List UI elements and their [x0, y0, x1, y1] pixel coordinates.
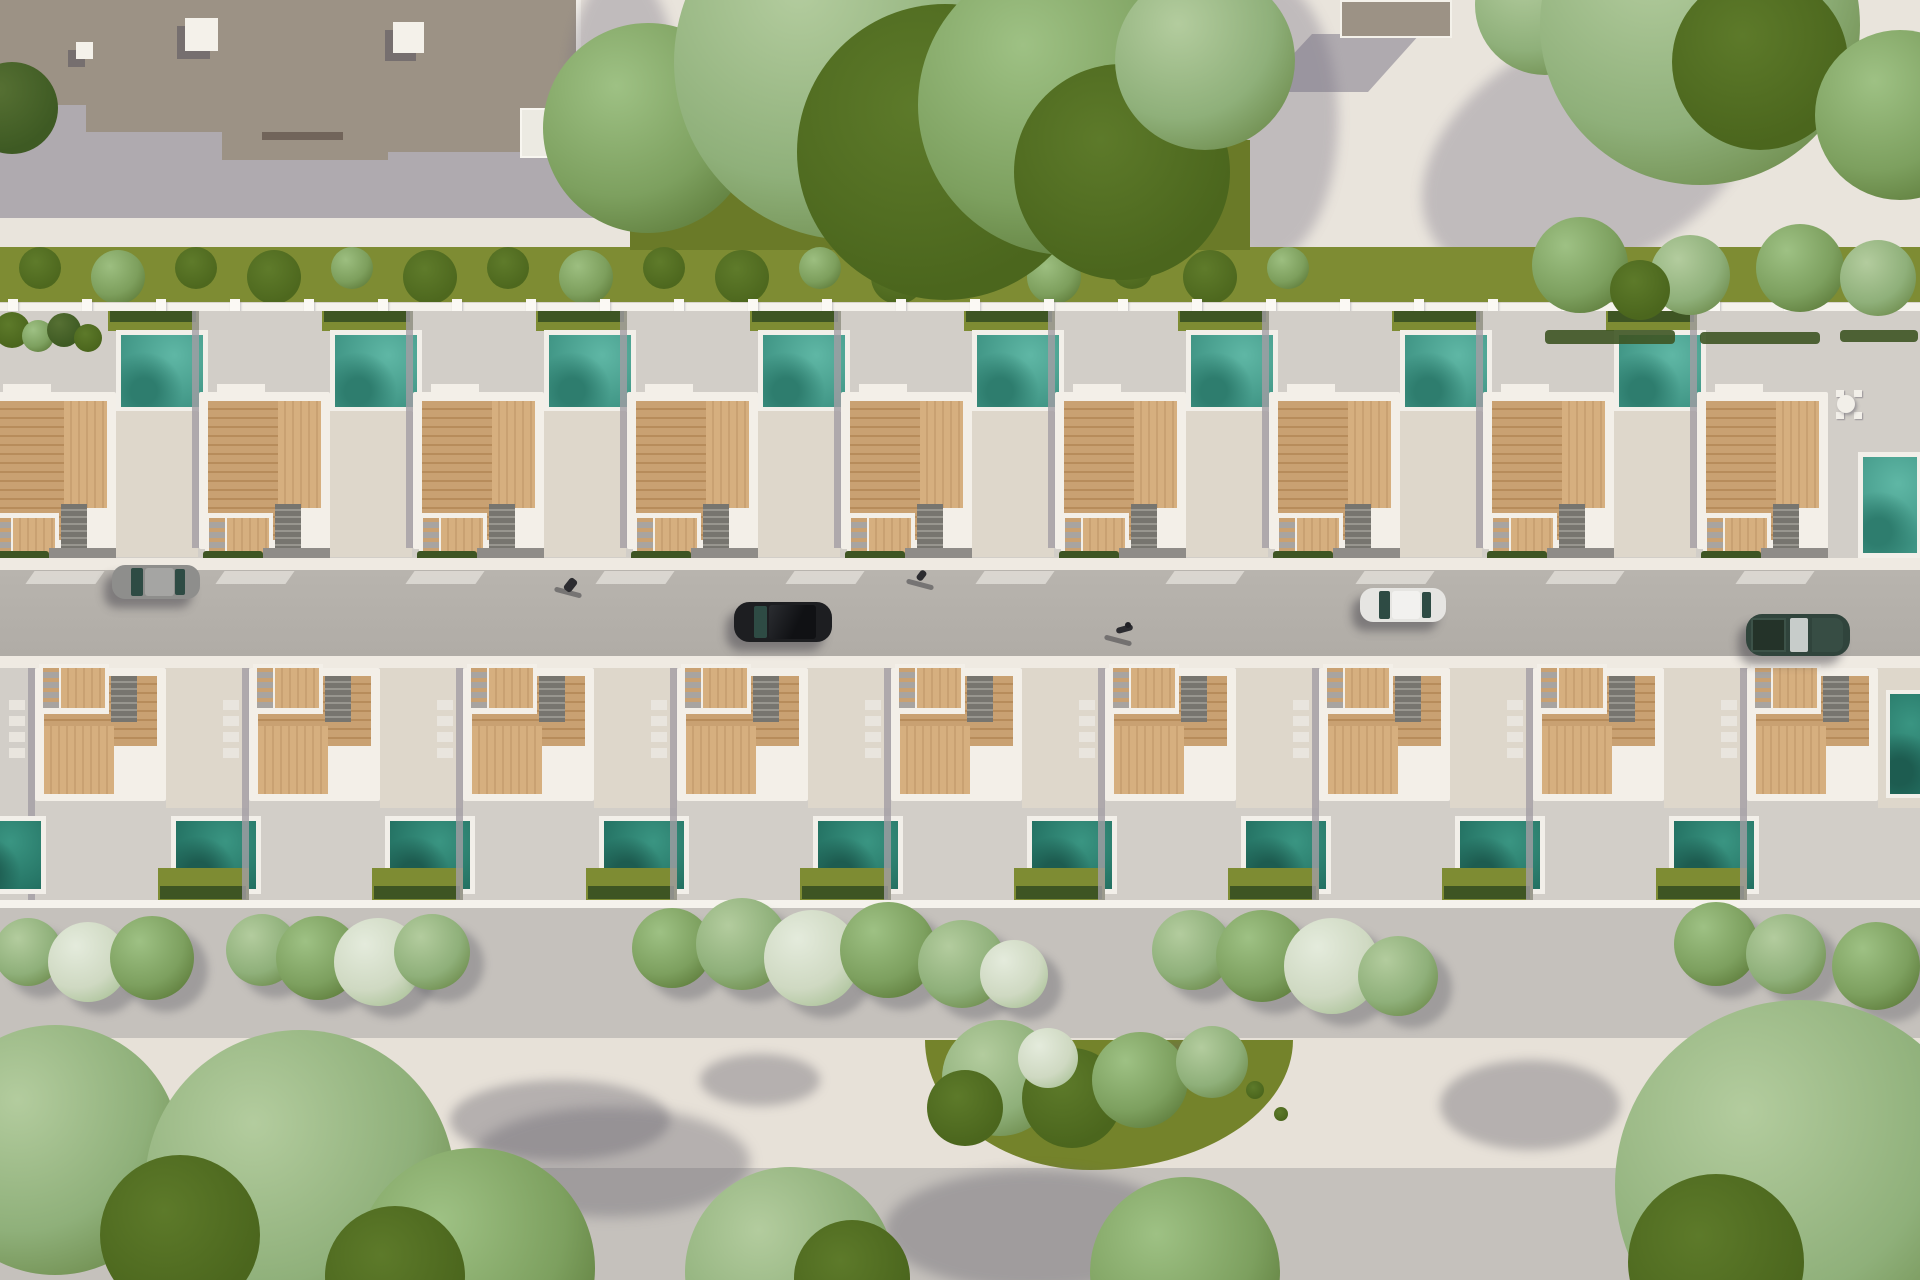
backyard-hedge [538, 311, 624, 322]
road-1 [0, 570, 1920, 656]
paver [1293, 748, 1309, 758]
patio-table [1837, 395, 1855, 413]
fence-shadow-mark [25, 571, 104, 584]
paver [437, 732, 453, 742]
stairs [703, 504, 729, 554]
roof-deck-notch [1368, 508, 1400, 548]
fence-shadow-mark [405, 571, 484, 584]
aerial-render-scene [0, 0, 1920, 1280]
lot-divider [1526, 668, 1533, 900]
stairs [61, 504, 87, 554]
fence-shadow-mark [785, 571, 864, 584]
driveway [1614, 411, 1696, 557]
stairs [1773, 504, 1799, 554]
lot-divider [456, 668, 463, 900]
roof-deck-planks-v [900, 726, 970, 794]
paver [1079, 700, 1095, 710]
villa-frame-step [1073, 384, 1121, 394]
stairs [1823, 676, 1849, 722]
front-wall [905, 548, 972, 558]
villa-frame-step [859, 384, 907, 394]
backyard-hedge [110, 311, 196, 322]
car-windshield [131, 568, 142, 595]
driveway [330, 411, 412, 557]
paver [865, 748, 881, 758]
porch-deck [489, 668, 533, 708]
hedge-clump [331, 247, 373, 289]
car-green-pickup [1746, 614, 1850, 656]
porch-deck [1559, 668, 1603, 708]
paver [9, 700, 25, 710]
roof-box-1 [185, 18, 218, 51]
stairs [489, 504, 515, 554]
roof-deck-planks-v [1756, 726, 1826, 794]
paver [223, 748, 239, 758]
roof-deck-planks-v [1328, 726, 1398, 794]
tree-shadow [700, 1054, 820, 1106]
island-tree [1176, 1026, 1248, 1098]
hedge-clump [403, 250, 457, 304]
roof-deck-planks-v [472, 726, 542, 794]
strip-tree [1610, 260, 1670, 320]
paver [865, 732, 881, 742]
pool-vertical-top [1858, 452, 1920, 558]
car-rear-window [175, 569, 185, 594]
lot-divider [620, 311, 627, 548]
villa-frame-step [217, 384, 265, 394]
paver [9, 732, 25, 742]
hedge-clump [1183, 250, 1237, 304]
fence-shadow-mark [1165, 571, 1244, 584]
hedge-clump [1267, 247, 1309, 289]
patio-chair [1854, 412, 1862, 419]
paver [1507, 716, 1523, 726]
front-wall [477, 548, 544, 558]
bush [980, 940, 1048, 1008]
cyclist-head [1125, 622, 1131, 628]
pergola [43, 668, 59, 708]
driveway [1400, 411, 1482, 557]
hedge-clump [247, 250, 301, 304]
pool [0, 816, 46, 894]
lot-divider [242, 668, 249, 900]
roof-deck-planks-v [1542, 726, 1612, 794]
hedge-clump [799, 247, 841, 289]
island-tree [927, 1070, 1003, 1146]
hedge-clump [487, 247, 529, 289]
roof-deck-notch [298, 508, 330, 548]
front-wall [1761, 548, 1828, 558]
paver [1293, 732, 1309, 742]
lot-divider [406, 311, 413, 548]
pergola [1541, 668, 1557, 708]
paver [1079, 748, 1095, 758]
stairs [967, 676, 993, 722]
stairs [1345, 504, 1371, 554]
backyard-hedge [374, 886, 460, 899]
paver [1293, 700, 1309, 710]
stairs [1181, 676, 1207, 722]
backyard-hedge [1016, 886, 1102, 899]
lot-divider [670, 668, 677, 900]
porch-deck [1131, 668, 1175, 708]
paver [9, 716, 25, 726]
front-wall [1119, 548, 1186, 558]
roof-box-2 [393, 22, 424, 53]
paver [1721, 748, 1737, 758]
porch-deck [275, 668, 319, 708]
roof-deck-planks-v [686, 726, 756, 794]
hedge-row [1700, 332, 1820, 344]
car-silver-sedan [112, 565, 200, 599]
backyard-hedge [1394, 311, 1480, 322]
lot-divider [834, 311, 841, 548]
hedge-clump [175, 247, 217, 289]
hedge-clump [559, 250, 613, 304]
paver [1293, 716, 1309, 726]
front-wall [49, 548, 116, 558]
lot-divider [1476, 311, 1483, 548]
island-tree [1018, 1028, 1078, 1088]
truck-cab-glass [1790, 618, 1809, 652]
stairs [275, 504, 301, 554]
paver [1721, 700, 1737, 710]
lot-divider [1262, 311, 1269, 548]
villa-frame-step [431, 384, 479, 394]
car-white-sedan [1360, 588, 1446, 622]
roof-deck-notch [84, 508, 116, 548]
paver [9, 748, 25, 758]
strip-tree [1756, 224, 1844, 312]
porch-deck [61, 668, 105, 708]
driveway [116, 411, 198, 557]
backyard-hedge [324, 311, 410, 322]
driveway [972, 411, 1054, 557]
lot-divider [192, 311, 199, 548]
fence-bottom [0, 900, 1920, 908]
bush [110, 916, 194, 1000]
hedge-row [1840, 330, 1918, 342]
stairs [111, 676, 137, 722]
porch-deck [1773, 668, 1817, 708]
curb-top [0, 558, 1920, 570]
hedge-clump [715, 250, 769, 304]
villa-frame-step [1501, 384, 1549, 394]
fence-shadow-mark [215, 571, 294, 584]
hedge-clump [19, 247, 61, 289]
hedge-row [1545, 330, 1675, 344]
backyard-hedge [752, 311, 838, 322]
paver [223, 716, 239, 726]
roof-deck-notch [1154, 508, 1186, 548]
paver [437, 748, 453, 758]
truck-bed [1751, 618, 1785, 652]
small-building-roof [1340, 0, 1452, 38]
paver [223, 732, 239, 742]
roof-deck-planks-v [258, 726, 328, 794]
paver [1721, 732, 1737, 742]
fence-shadow-mark [1545, 571, 1624, 584]
porch-deck [703, 668, 747, 708]
apartment-roof-recess [262, 132, 343, 140]
front-wall [263, 548, 330, 558]
roof-box-0 [76, 42, 93, 59]
fence-shadow-mark [975, 571, 1054, 584]
backyard-hedge [588, 886, 674, 899]
pergola [1113, 668, 1129, 708]
front-wall [1547, 548, 1614, 558]
island-tree [1246, 1081, 1264, 1099]
bush [1746, 914, 1826, 994]
roof-deck-notch [512, 508, 544, 548]
paver [437, 700, 453, 710]
car-roof [769, 605, 816, 639]
fence-shadow-mark [1355, 571, 1434, 584]
pergola [1327, 668, 1343, 708]
bush [1832, 922, 1920, 1010]
lot-divider [1740, 668, 1747, 900]
paver [1507, 732, 1523, 742]
roof-deck-notch [726, 508, 758, 548]
backyard-hedge [160, 886, 246, 899]
backyard-hedge [1230, 886, 1316, 899]
patio-chair [1854, 390, 1862, 397]
stairs [917, 504, 943, 554]
car-rear-window [1422, 592, 1431, 617]
car-windshield [1379, 591, 1390, 618]
car-roof [145, 568, 174, 595]
backyard-hedge [802, 886, 888, 899]
villa-frame-step [645, 384, 693, 394]
roof-deck-planks-v [44, 726, 114, 794]
roof-deck-notch [1796, 508, 1828, 548]
roof-deck-notch [1582, 508, 1614, 548]
pergola [899, 668, 915, 708]
paver [651, 732, 667, 742]
hedge-clump [91, 250, 145, 304]
villa-frame-step [3, 384, 51, 394]
front-wall [1333, 548, 1400, 558]
paver [651, 716, 667, 726]
villa-frame-step [1287, 384, 1335, 394]
truck-hood [1812, 618, 1843, 652]
car-roof [1392, 591, 1420, 618]
fence-shadow-mark [1735, 571, 1814, 584]
paver [651, 700, 667, 710]
paver [865, 700, 881, 710]
villa-frame-step [1715, 384, 1763, 394]
stairs [1131, 504, 1157, 554]
roof-deck-notch [940, 508, 972, 548]
paver [1507, 700, 1523, 710]
paver [1079, 732, 1095, 742]
driveway [1186, 411, 1268, 557]
stairs [753, 676, 779, 722]
paver [1507, 748, 1523, 758]
bush [1674, 902, 1758, 986]
hedge-clump [643, 247, 685, 289]
porch-deck [1345, 668, 1389, 708]
car-windshield [754, 606, 768, 638]
pergola [257, 668, 273, 708]
fence-shadow-mark [595, 571, 674, 584]
porch-deck [917, 668, 961, 708]
pergola [471, 668, 487, 708]
pergola [685, 668, 701, 708]
paver [1721, 716, 1737, 726]
lot-divider [1048, 311, 1055, 548]
backyard-hedge [1180, 311, 1266, 322]
driveway [544, 411, 626, 557]
paver [223, 700, 239, 710]
island-tree [1274, 1107, 1288, 1121]
backyard-hedge [966, 311, 1052, 322]
stairs [1559, 504, 1585, 554]
stairs [1395, 676, 1421, 722]
bush [1358, 936, 1438, 1016]
paver [437, 716, 453, 726]
front-wall [691, 548, 758, 558]
lot-divider [1312, 668, 1319, 900]
paver [651, 748, 667, 758]
backyard-hedge [1444, 886, 1530, 899]
stairs [1609, 676, 1635, 722]
lot-divider [884, 668, 891, 900]
paver [865, 716, 881, 726]
stairs [325, 676, 351, 722]
strip-tree [1840, 240, 1916, 316]
island-tree [1092, 1032, 1188, 1128]
stairs [539, 676, 565, 722]
tree-shadow [1440, 1060, 1620, 1150]
driveway [758, 411, 840, 557]
pool-vertical-bottom [1886, 690, 1920, 798]
bush [394, 914, 470, 990]
paver [1079, 716, 1095, 726]
lot-divider [1690, 311, 1697, 548]
roof-deck-planks-v [1114, 726, 1184, 794]
backyard-hedge [1658, 886, 1744, 899]
patio-chair [1836, 412, 1844, 419]
planter-shrub [74, 324, 102, 352]
car-black-suv [734, 602, 832, 642]
pergola [1755, 668, 1771, 708]
lot-divider [1098, 668, 1105, 900]
